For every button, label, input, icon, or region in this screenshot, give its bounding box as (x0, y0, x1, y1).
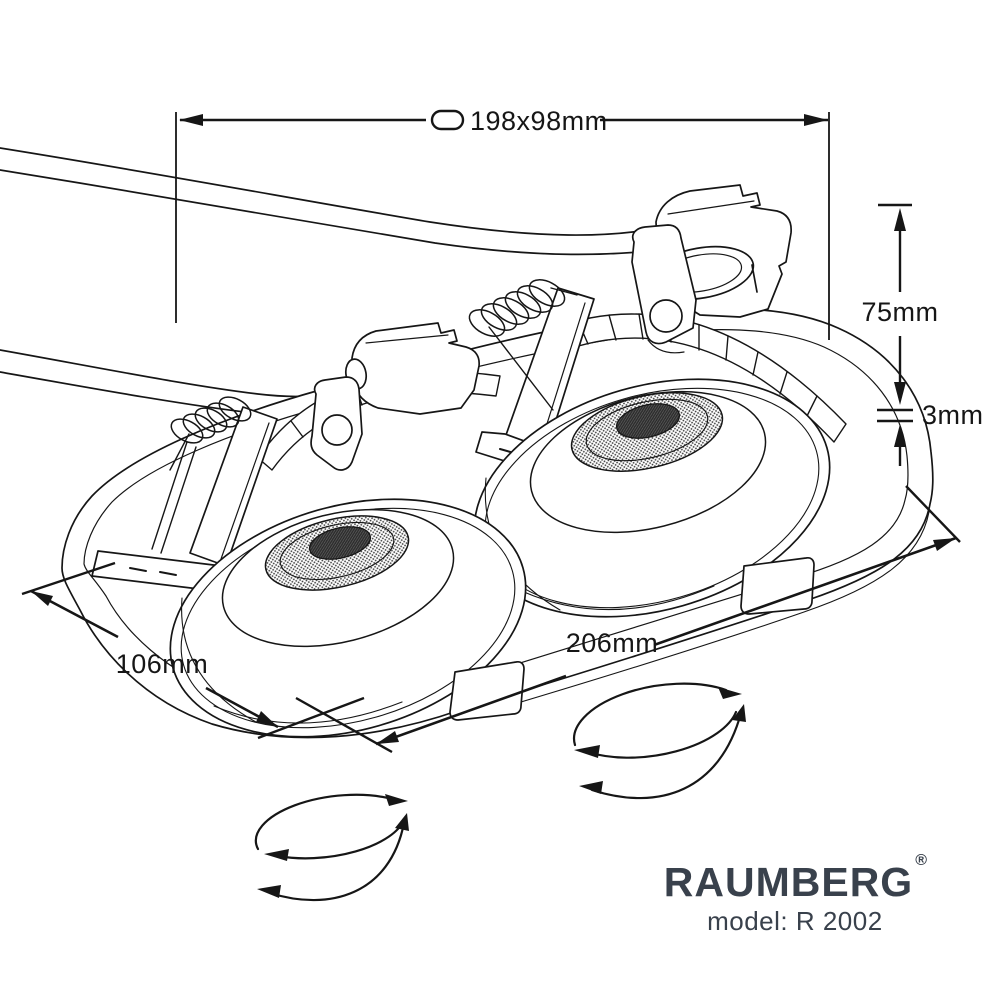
dim-label-length: 206mm (566, 628, 659, 658)
technical-drawing-svg: 198x98mm 75mm 3mm 106mm 206mm (0, 0, 1000, 1000)
brand-block: RAUMBERG® model: R 2002 (664, 862, 926, 937)
rotation-arrowhead (257, 885, 281, 898)
supply-cable-top (0, 148, 672, 254)
rotation-arrowhead (264, 849, 289, 861)
junction-box-left (344, 323, 480, 414)
brand-name: RAUMBERG® (664, 862, 926, 903)
registered-trademark-icon: ® (915, 852, 928, 869)
dim-arrowhead (933, 538, 956, 551)
mounting-tab-center (450, 662, 524, 720)
rotation-arrowhead (385, 794, 408, 806)
downlight-illustration (0, 148, 933, 776)
rotation-arrowhead (395, 813, 409, 831)
technical-drawing-page: 198x98mm 75mm 3mm 106mm 206mm (0, 0, 1000, 1000)
brand-wordmark: RAUMBERG (664, 859, 913, 905)
dim-label-cutout: 198x98mm (470, 106, 608, 136)
rotation-arrowhead (579, 781, 603, 794)
rotation-arrowhead (718, 687, 742, 699)
rotation-arrowhead (732, 704, 746, 722)
oval-cutout-icon (432, 111, 463, 129)
dim-arrowhead (804, 114, 828, 126)
dim-arrowhead (31, 591, 53, 606)
rotation-indicator-left (256, 794, 409, 900)
brand-model: model: R 2002 (664, 906, 926, 937)
rotation-indicator-right (574, 684, 746, 798)
dim-arrowhead (894, 208, 906, 231)
dim-label-rim: 3mm (922, 400, 984, 430)
dim-arrowhead (179, 114, 203, 126)
dim-label-width: 106mm (116, 649, 209, 679)
yoke-strap-left (311, 377, 362, 470)
dim-label-height: 75mm (861, 297, 938, 327)
rotation-arrowhead (574, 745, 600, 758)
dim-arrowhead (376, 731, 399, 744)
mounting-tab-right (741, 558, 814, 614)
